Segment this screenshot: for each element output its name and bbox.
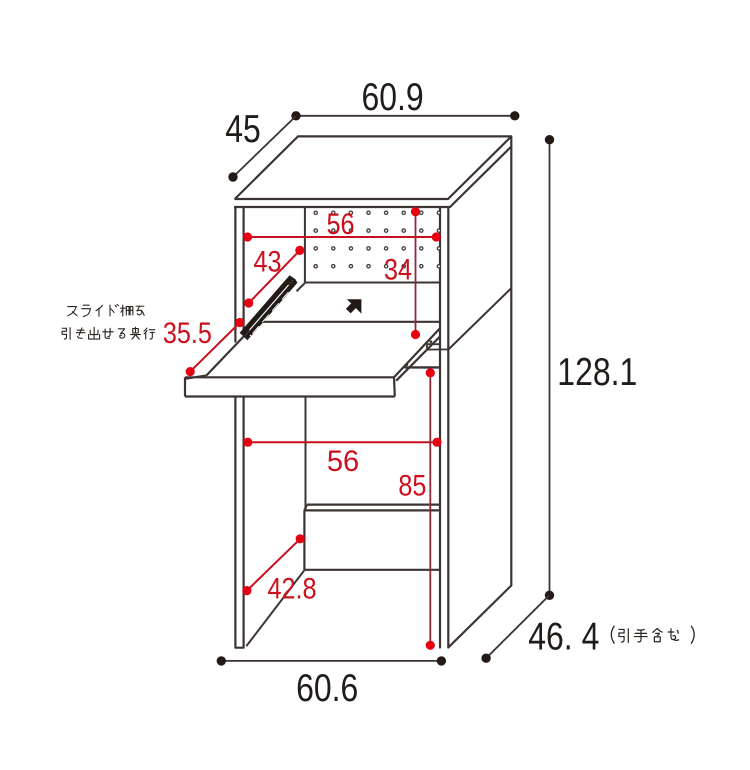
svg-text:45: 45 — [225, 107, 261, 151]
svg-text:43: 43 — [253, 244, 281, 278]
svg-text:128.1: 128.1 — [557, 350, 637, 394]
svg-text:34: 34 — [384, 252, 412, 286]
svg-text:42.8: 42.8 — [267, 571, 316, 605]
svg-text:60.9: 60.9 — [361, 75, 423, 119]
svg-text:60.6: 60.6 — [296, 666, 358, 710]
svg-text:85: 85 — [398, 468, 426, 502]
svg-text:35.5: 35.5 — [163, 316, 212, 350]
svg-text:46. 4: 46. 4 — [528, 615, 599, 659]
svg-text:56: 56 — [326, 207, 354, 241]
svg-text:56: 56 — [327, 445, 359, 478]
